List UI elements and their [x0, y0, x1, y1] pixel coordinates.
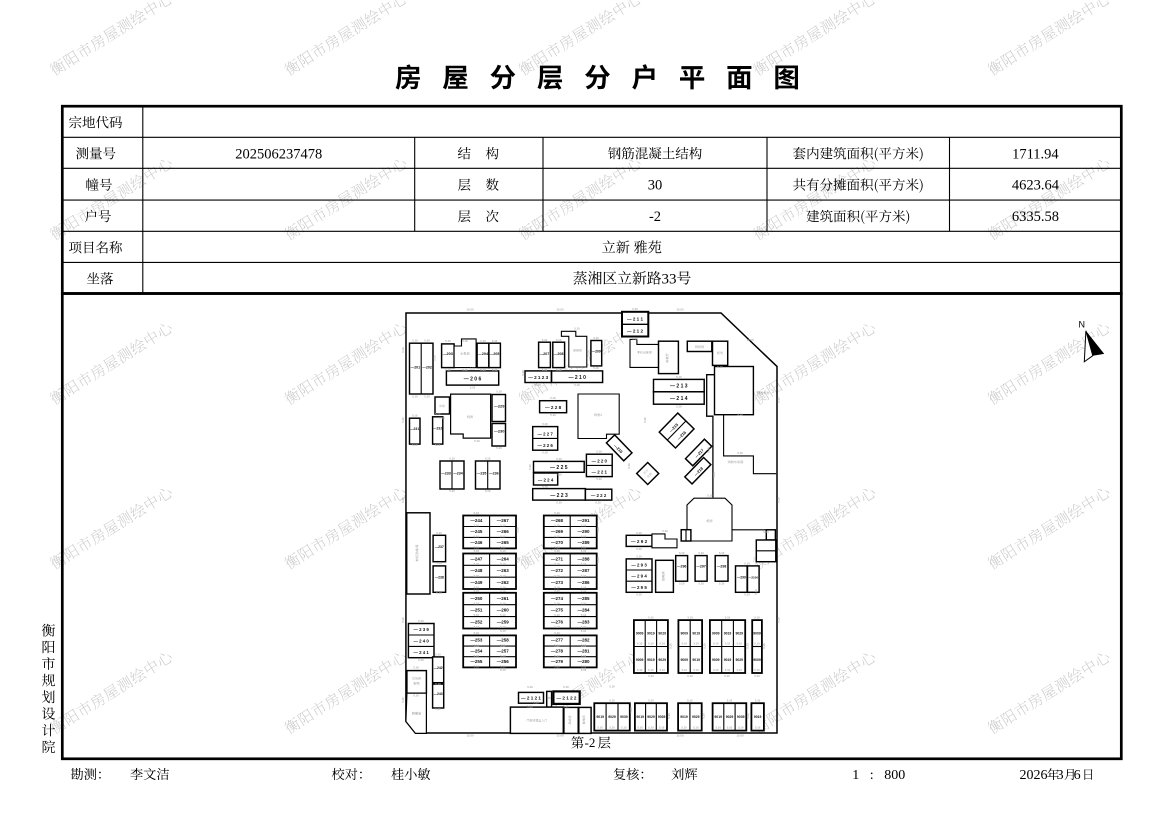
- svg-text:5.10: 5.10: [669, 643, 673, 649]
- svg-text:—229: —229: [494, 403, 505, 408]
- svg-text:9039: 9039: [737, 715, 745, 719]
- svg-text:—234: —234: [453, 472, 463, 476]
- svg-text:9039: 9039: [620, 715, 628, 719]
- svg-text:— 2 2 3: — 2 2 3: [550, 493, 568, 499]
- svg-text:9019: 9019: [724, 632, 732, 636]
- svg-text:5.10: 5.10: [596, 527, 600, 533]
- svg-text:5.10: 5.10: [474, 549, 480, 553]
- svg-text:—273: —273: [551, 580, 564, 585]
- svg-text:5.10: 5.10: [744, 561, 750, 565]
- svg-text:5.10: 5.10: [554, 601, 560, 605]
- svg-text:5.10: 5.10: [648, 668, 654, 672]
- svg-text:5.10: 5.10: [527, 685, 533, 689]
- svg-text:12.00: 12.00: [557, 734, 564, 738]
- svg-text:— 2 0 6: — 2 0 6: [464, 377, 482, 383]
- svg-text:—299: —299: [737, 576, 746, 580]
- svg-text:5.10: 5.10: [745, 643, 749, 649]
- svg-text:5.10: 5.10: [550, 396, 556, 400]
- svg-text:5.10: 5.10: [632, 337, 638, 341]
- svg-text:5.10: 5.10: [596, 557, 600, 563]
- svg-text:5.10: 5.10: [474, 511, 480, 515]
- svg-text:— 2 1 1: — 2 1 1: [627, 317, 644, 322]
- svg-text:5.10: 5.10: [676, 405, 682, 409]
- svg-text:—263: —263: [497, 568, 510, 573]
- svg-text:5.10: 5.10: [418, 619, 424, 623]
- svg-text:9009: 9009: [681, 658, 689, 662]
- svg-text:5.10: 5.10: [777, 497, 781, 503]
- svg-text:5.10: 5.10: [609, 725, 615, 729]
- svg-text:5.10: 5.10: [424, 339, 430, 343]
- svg-text:N: N: [1079, 320, 1086, 330]
- svg-text:—247: —247: [470, 556, 483, 561]
- svg-text:5.10: 5.10: [550, 413, 556, 417]
- svg-text:5.10: 5.10: [609, 685, 615, 689]
- svg-text:5.10: 5.10: [500, 654, 506, 658]
- svg-text:9019: 9019: [680, 715, 688, 719]
- svg-text:—272: —272: [551, 568, 564, 573]
- svg-text:5.10: 5.10: [698, 551, 704, 555]
- svg-text:5.10: 5.10: [762, 643, 766, 649]
- svg-text:—275: —275: [551, 608, 564, 613]
- svg-text:5.10: 5.10: [542, 485, 548, 489]
- svg-text:—259: —259: [497, 620, 510, 625]
- svg-text:— 2 1 4: — 2 1 4: [670, 396, 688, 402]
- svg-text:5.10: 5.10: [500, 524, 506, 528]
- svg-text:5.10: 5.10: [597, 725, 603, 729]
- svg-text:5.10: 5.10: [755, 699, 761, 703]
- svg-text:12.00: 12.00: [677, 734, 684, 738]
- svg-text:5.10: 5.10: [659, 725, 665, 729]
- svg-text:5.10: 5.10: [474, 535, 480, 539]
- svg-text:5.10: 5.10: [496, 390, 502, 394]
- svg-text:5.10: 5.10: [554, 588, 560, 592]
- svg-text:—242: —242: [434, 666, 443, 670]
- svg-text:12.00: 12.00: [467, 734, 474, 738]
- svg-text:5.10: 5.10: [719, 551, 725, 555]
- svg-text:5.10: 5.10: [474, 524, 480, 528]
- svg-text:—276: —276: [551, 620, 564, 625]
- svg-text:5.10: 5.10: [533, 701, 539, 705]
- svg-text:—297: —297: [696, 565, 705, 569]
- svg-text:5.10: 5.10: [500, 601, 506, 605]
- svg-text:— 2 2 5: — 2 2 5: [550, 465, 568, 471]
- svg-text:5.10: 5.10: [480, 368, 486, 372]
- svg-text:5.10: 5.10: [754, 674, 760, 678]
- svg-text:5.10: 5.10: [563, 705, 569, 709]
- svg-text:—245: —245: [470, 529, 483, 534]
- svg-text:5.10: 5.10: [500, 549, 506, 553]
- svg-text:9009: 9009: [636, 658, 644, 662]
- svg-text:—266: —266: [497, 529, 510, 534]
- svg-text:5.10: 5.10: [535, 383, 541, 387]
- svg-text:5.10: 5.10: [627, 463, 631, 469]
- svg-text:5.10: 5.10: [754, 589, 758, 595]
- svg-text:5.10: 5.10: [725, 668, 731, 672]
- svg-text:5.10: 5.10: [412, 395, 418, 399]
- svg-text:5.10: 5.10: [712, 472, 716, 478]
- svg-text:5.10: 5.10: [754, 641, 760, 645]
- svg-text:—268: —268: [551, 518, 564, 523]
- svg-text:9029: 9029: [736, 632, 744, 636]
- svg-text:5.10: 5.10: [593, 366, 599, 370]
- svg-text:5.10: 5.10: [418, 658, 424, 662]
- svg-text:— 2 9 3: — 2 9 3: [631, 563, 647, 568]
- svg-text:-2: -2: [585, 735, 596, 750]
- svg-text:—277: —277: [551, 638, 564, 643]
- svg-text:—285: —285: [577, 596, 590, 601]
- svg-text:5.10: 5.10: [574, 327, 580, 331]
- svg-text:5.10: 5.10: [636, 531, 642, 535]
- svg-text:5.10: 5.10: [681, 725, 687, 729]
- svg-text:—209: —209: [592, 350, 601, 354]
- svg-text:5.10: 5.10: [679, 582, 685, 586]
- svg-text:9029: 9029: [692, 715, 700, 719]
- svg-text:5.10: 5.10: [737, 451, 743, 455]
- svg-text:9019: 9019: [754, 715, 762, 719]
- svg-text:—205: —205: [490, 352, 500, 356]
- svg-text:5.10: 5.10: [581, 524, 587, 528]
- svg-text:5.10: 5.10: [485, 489, 491, 493]
- svg-text:5.10: 5.10: [542, 338, 548, 342]
- svg-text:—2100: —2100: [748, 576, 758, 580]
- svg-text:5.10: 5.10: [554, 643, 560, 647]
- svg-text:—284: —284: [577, 608, 590, 613]
- svg-text:5.10: 5.10: [777, 617, 781, 623]
- svg-text:—256: —256: [497, 659, 510, 664]
- svg-text:5.10: 5.10: [500, 574, 506, 578]
- svg-text:5.10: 5.10: [581, 654, 587, 658]
- svg-text:5.10: 5.10: [719, 582, 725, 586]
- svg-text:5.10: 5.10: [516, 527, 520, 533]
- svg-text:5.10: 5.10: [609, 699, 615, 703]
- svg-text:5.10: 5.10: [738, 725, 744, 729]
- svg-text:5.10: 5.10: [725, 616, 731, 620]
- svg-text:5.10: 5.10: [713, 641, 719, 645]
- svg-text:4623.64: 4623.64: [1012, 178, 1060, 194]
- svg-text:5.10: 5.10: [412, 443, 418, 447]
- svg-text:12.00: 12.00: [747, 338, 754, 342]
- svg-text:9029: 9029: [658, 658, 666, 662]
- svg-text:5.10: 5.10: [470, 367, 476, 371]
- svg-text:12.00: 12.00: [467, 308, 474, 312]
- svg-text:9009: 9009: [753, 658, 761, 662]
- svg-text:5.10: 5.10: [637, 641, 643, 645]
- svg-text:5.10: 5.10: [637, 725, 643, 729]
- svg-text:5.10: 5.10: [632, 307, 638, 311]
- svg-text:5.10: 5.10: [435, 707, 441, 711]
- svg-text:5.10: 5.10: [563, 685, 569, 689]
- svg-text:5.10: 5.10: [435, 682, 441, 686]
- svg-text:5.10: 5.10: [554, 654, 560, 658]
- svg-text:-2: -2: [649, 209, 661, 225]
- svg-text:9019: 9019: [724, 658, 732, 662]
- svg-text:—233: —233: [441, 472, 451, 476]
- svg-text:12.00: 12.00: [737, 734, 744, 738]
- svg-text:—203: —203: [443, 352, 453, 356]
- svg-text:—289: —289: [577, 540, 590, 545]
- svg-text::: :: [870, 768, 874, 783]
- svg-text:5.10: 5.10: [667, 713, 671, 719]
- svg-text:—298: —298: [717, 565, 726, 569]
- svg-text:5.10: 5.10: [436, 531, 442, 535]
- svg-text:5.10: 5.10: [435, 443, 441, 447]
- svg-text:— 2 2 2: — 2 2 2: [591, 493, 607, 498]
- svg-text:—230: —230: [494, 428, 504, 433]
- svg-text:5.10: 5.10: [754, 616, 760, 620]
- svg-text:—254: —254: [470, 648, 483, 653]
- svg-text:5.10: 5.10: [581, 535, 587, 539]
- svg-text:5.10: 5.10: [500, 668, 506, 672]
- svg-text:5.10: 5.10: [521, 370, 525, 376]
- svg-text:—237: —237: [435, 545, 444, 549]
- svg-text:5.10: 5.10: [595, 501, 601, 505]
- svg-text:—208: —208: [554, 352, 564, 356]
- svg-text:—282: —282: [577, 638, 590, 643]
- svg-text:12.00: 12.00: [677, 308, 684, 312]
- svg-text:—269: —269: [551, 529, 564, 534]
- svg-text:5.10: 5.10: [744, 592, 750, 596]
- svg-text:5.10: 5.10: [629, 707, 633, 713]
- svg-text:202506237478: 202506237478: [235, 146, 322, 162]
- svg-text:800: 800: [884, 768, 905, 783]
- svg-text:5.10: 5.10: [424, 395, 430, 399]
- svg-text:—255: —255: [470, 659, 483, 664]
- svg-text:5.10: 5.10: [702, 713, 706, 719]
- svg-text:5.10: 5.10: [445, 339, 451, 343]
- svg-text:5.10: 5.10: [554, 665, 560, 669]
- svg-text:5.10: 5.10: [755, 725, 761, 729]
- svg-text:5.10: 5.10: [474, 574, 480, 578]
- svg-text:9009: 9009: [681, 632, 689, 636]
- svg-text:—253: —253: [470, 638, 483, 643]
- svg-text:5.10: 5.10: [492, 368, 498, 372]
- svg-text:5.10: 5.10: [724, 674, 730, 678]
- svg-text:—279: —279: [551, 659, 564, 664]
- svg-text:5.10: 5.10: [474, 613, 480, 617]
- svg-text:5.10: 5.10: [401, 347, 405, 353]
- svg-text:5.10: 5.10: [725, 641, 731, 645]
- svg-text:5.10: 5.10: [474, 631, 480, 635]
- svg-text:9019: 9019: [596, 715, 604, 719]
- svg-text:5.10: 5.10: [554, 574, 560, 578]
- svg-text:5.10: 5.10: [436, 591, 442, 595]
- svg-text:5.10: 5.10: [693, 725, 699, 729]
- svg-text:5.10: 5.10: [485, 457, 491, 461]
- svg-text:9029: 9029: [608, 715, 616, 719]
- svg-text:5.10: 5.10: [556, 501, 562, 505]
- svg-text:5.10: 5.10: [679, 551, 685, 555]
- svg-text:5.10: 5.10: [449, 457, 455, 461]
- svg-text:6: 6: [1074, 768, 1081, 783]
- svg-text:5.10: 5.10: [554, 562, 560, 566]
- svg-text:5.10: 5.10: [542, 451, 548, 455]
- svg-text:5.10: 5.10: [500, 643, 506, 647]
- svg-text:— 2 2 6: — 2 2 6: [538, 443, 554, 448]
- svg-text:5.10: 5.10: [727, 725, 733, 729]
- svg-text:5.10: 5.10: [554, 625, 560, 629]
- svg-text:— 2 3 9: — 2 3 9: [414, 627, 430, 632]
- svg-text:5.10: 5.10: [439, 416, 445, 420]
- svg-text:5.10: 5.10: [707, 447, 711, 453]
- svg-text:—246: —246: [470, 540, 483, 545]
- svg-text:5.10: 5.10: [556, 457, 562, 461]
- svg-text:—236: —236: [489, 472, 499, 476]
- svg-text:5.10: 5.10: [581, 629, 587, 633]
- svg-text:5.10: 5.10: [413, 666, 419, 670]
- svg-text:5.10: 5.10: [449, 489, 455, 493]
- svg-text:5.10: 5.10: [596, 450, 602, 454]
- svg-text:—201: —201: [411, 366, 421, 370]
- svg-text:— 2 4 1: — 2 4 1: [414, 650, 430, 655]
- svg-text:— 2 9 5: — 2 9 5: [631, 585, 647, 590]
- svg-text:5.10: 5.10: [556, 338, 562, 342]
- svg-text:9009: 9009: [712, 658, 720, 662]
- svg-text:5.10: 5.10: [713, 668, 719, 672]
- svg-text:5.10: 5.10: [737, 413, 743, 417]
- svg-text:—232: —232: [433, 427, 442, 431]
- svg-text:5.10: 5.10: [474, 643, 480, 647]
- svg-text:5.10: 5.10: [687, 699, 693, 703]
- svg-text:5.10: 5.10: [474, 439, 480, 443]
- svg-text:—257: —257: [497, 648, 510, 653]
- svg-text:5.10: 5.10: [648, 674, 654, 678]
- svg-text:5.10: 5.10: [556, 473, 562, 477]
- svg-text:5.10: 5.10: [581, 668, 587, 672]
- svg-text:—288: —288: [577, 556, 590, 561]
- svg-text:9029: 9029: [726, 715, 734, 719]
- svg-text:—204: —204: [478, 352, 489, 356]
- svg-text:—231: —231: [410, 427, 419, 431]
- svg-text:5.10: 5.10: [500, 613, 506, 617]
- svg-text:5.10: 5.10: [754, 668, 760, 672]
- svg-text:5.10: 5.10: [737, 641, 743, 645]
- svg-text:3: 3: [1057, 768, 1064, 783]
- svg-text:5.10: 5.10: [516, 557, 520, 563]
- svg-text:5.10: 5.10: [542, 422, 548, 426]
- svg-text:—286: —286: [577, 580, 590, 585]
- svg-text:5.10: 5.10: [413, 694, 419, 698]
- svg-text:—238: —238: [435, 576, 444, 580]
- svg-text:5.10: 5.10: [470, 386, 476, 390]
- svg-text:5.10: 5.10: [474, 601, 480, 605]
- svg-text:—248: —248: [470, 568, 483, 573]
- svg-text:— 2 2 1: — 2 2 1: [592, 470, 608, 475]
- svg-text:5.10: 5.10: [401, 697, 405, 703]
- svg-text:5.10: 5.10: [554, 511, 560, 515]
- svg-text:5.10: 5.10: [662, 529, 668, 533]
- svg-text:— 2 1 2 2: — 2 1 2 2: [557, 696, 577, 701]
- svg-text:—249: —249: [470, 580, 483, 585]
- svg-text:9019: 9019: [647, 632, 655, 636]
- svg-text:5.10: 5.10: [581, 601, 587, 605]
- svg-text:5.10: 5.10: [445, 368, 451, 372]
- svg-text:—271: —271: [551, 556, 564, 561]
- svg-text:— 2 2 7: — 2 2 7: [538, 432, 554, 437]
- svg-text:12.00: 12.00: [557, 308, 564, 312]
- svg-text:—290: —290: [577, 529, 590, 534]
- svg-text:5.10: 5.10: [636, 554, 642, 558]
- svg-text:5.10: 5.10: [581, 549, 587, 553]
- svg-text:—291: —291: [577, 518, 590, 523]
- svg-text:—296: —296: [677, 565, 686, 569]
- svg-text:5.10: 5.10: [492, 339, 498, 343]
- svg-text:33: 33: [662, 271, 677, 287]
- svg-text:5.10: 5.10: [527, 705, 533, 709]
- svg-text:5.10: 5.10: [554, 535, 560, 539]
- svg-text:—267: —267: [497, 518, 510, 523]
- svg-text:5.10: 5.10: [693, 668, 699, 672]
- svg-text:—243: —243: [434, 692, 443, 696]
- svg-text:9019: 9019: [692, 658, 700, 662]
- svg-text:—202: —202: [422, 366, 432, 370]
- svg-text:5.10: 5.10: [593, 336, 599, 340]
- svg-text:5.10: 5.10: [648, 641, 654, 645]
- svg-text:5.10: 5.10: [777, 397, 781, 403]
- svg-text:5.10: 5.10: [435, 653, 441, 657]
- svg-text:5.10: 5.10: [474, 665, 480, 669]
- svg-text:9009: 9009: [636, 632, 644, 636]
- svg-text:5.10: 5.10: [474, 625, 480, 629]
- svg-text:— 2 9 4: — 2 9 4: [631, 574, 647, 579]
- svg-text:5.10: 5.10: [717, 365, 723, 369]
- svg-text:5.10: 5.10: [676, 375, 682, 379]
- svg-text:— 2 2 4: — 2 2 4: [538, 478, 554, 483]
- svg-text:5.10: 5.10: [433, 355, 437, 361]
- svg-text:5.10: 5.10: [648, 616, 654, 620]
- svg-text:—235: —235: [477, 472, 487, 476]
- svg-text:9019: 9019: [647, 658, 655, 662]
- svg-text:—287: —287: [577, 568, 590, 573]
- svg-text:5.10: 5.10: [682, 641, 688, 645]
- svg-text:5.10: 5.10: [621, 725, 627, 729]
- svg-text:5.10: 5.10: [746, 713, 750, 719]
- svg-text:9009: 9009: [712, 632, 720, 636]
- svg-text:—252: —252: [470, 620, 483, 625]
- svg-text:—261: —261: [497, 596, 510, 601]
- svg-text:5.10: 5.10: [554, 613, 560, 617]
- svg-text:—250: —250: [470, 596, 483, 601]
- svg-text:—260: —260: [497, 608, 510, 613]
- svg-text:—278: —278: [551, 648, 564, 653]
- svg-text:5.10: 5.10: [659, 668, 665, 672]
- svg-text:5.10: 5.10: [682, 668, 688, 672]
- svg-text:—281: —281: [577, 648, 590, 653]
- svg-text:5.10: 5.10: [500, 535, 506, 539]
- svg-text:5.10: 5.10: [500, 562, 506, 566]
- svg-text:— 2 1 2 3: — 2 1 2 3: [528, 375, 548, 380]
- svg-text:5.10: 5.10: [648, 725, 654, 729]
- svg-text:5.10: 5.10: [715, 725, 721, 729]
- svg-text:—283: —283: [577, 620, 590, 625]
- svg-text:9019: 9019: [692, 632, 700, 636]
- svg-text:5.10: 5.10: [596, 477, 602, 481]
- svg-text:2026: 2026: [1020, 768, 1048, 783]
- svg-text:5.10: 5.10: [542, 368, 548, 372]
- svg-text:5.10: 5.10: [474, 588, 480, 592]
- svg-text:5.10: 5.10: [474, 654, 480, 658]
- svg-text:5.10: 5.10: [480, 339, 486, 343]
- svg-text:5.10: 5.10: [554, 524, 560, 528]
- svg-text:—270: —270: [551, 540, 564, 545]
- svg-text:1: 1: [852, 768, 859, 783]
- svg-text:30: 30: [648, 178, 663, 194]
- svg-text:— 2 1 2: — 2 1 2: [627, 329, 644, 334]
- svg-text:5.10: 5.10: [435, 412, 441, 416]
- svg-text:5.10: 5.10: [556, 368, 562, 372]
- svg-text:5.10: 5.10: [401, 417, 405, 423]
- svg-text:—207: —207: [540, 352, 550, 356]
- svg-text:—262: —262: [497, 580, 510, 585]
